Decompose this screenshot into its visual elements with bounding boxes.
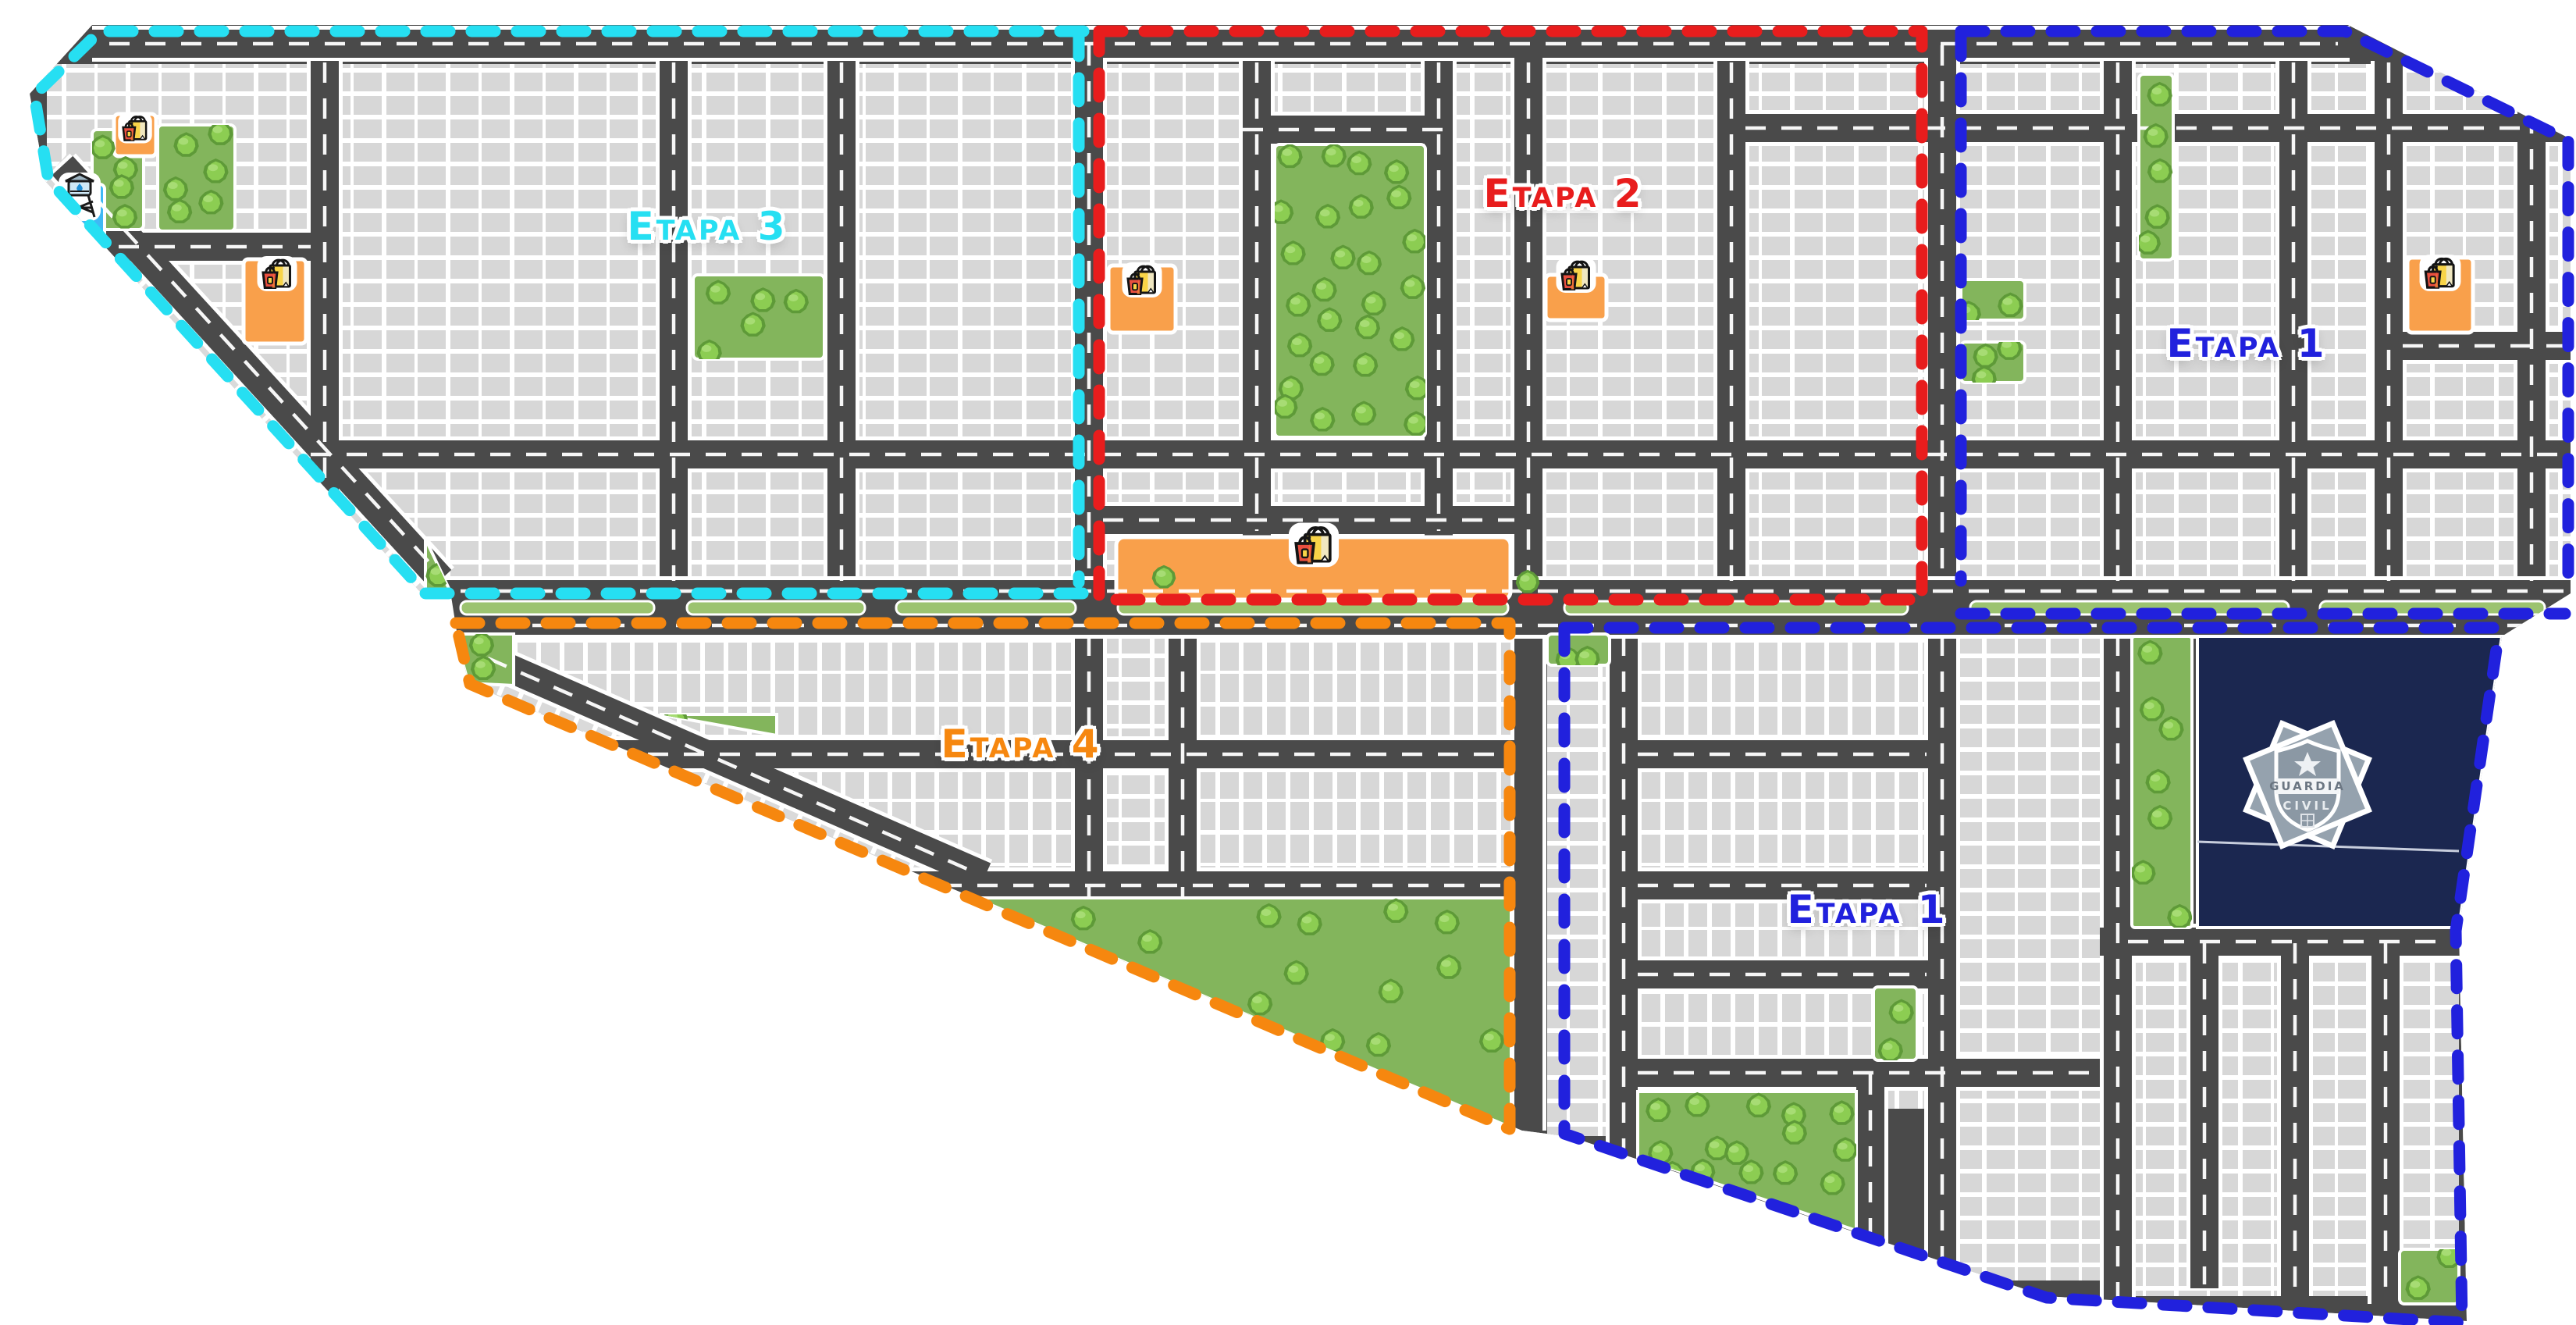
master-plan-map: GUARDIA CIVIL xyxy=(0,0,2576,1325)
land-area: GUARDIA CIVIL xyxy=(30,25,2571,1321)
shopping-bags-icon xyxy=(118,113,151,143)
shopping-bags-icon xyxy=(2420,255,2461,291)
badge-subtitle: CIVIL xyxy=(2282,799,2332,813)
badge-title: GUARDIA xyxy=(2269,779,2346,793)
shopping-bags-icon xyxy=(1557,258,1596,293)
shopping-bags-icon xyxy=(258,256,297,291)
shopping-bags-icon xyxy=(1289,523,1339,568)
master-plan: GUARDIA CIVIL Etapa 3 Etapa 2 Etapa 1 Et… xyxy=(0,0,2576,1325)
shopping-bags-icon xyxy=(1123,262,1162,297)
